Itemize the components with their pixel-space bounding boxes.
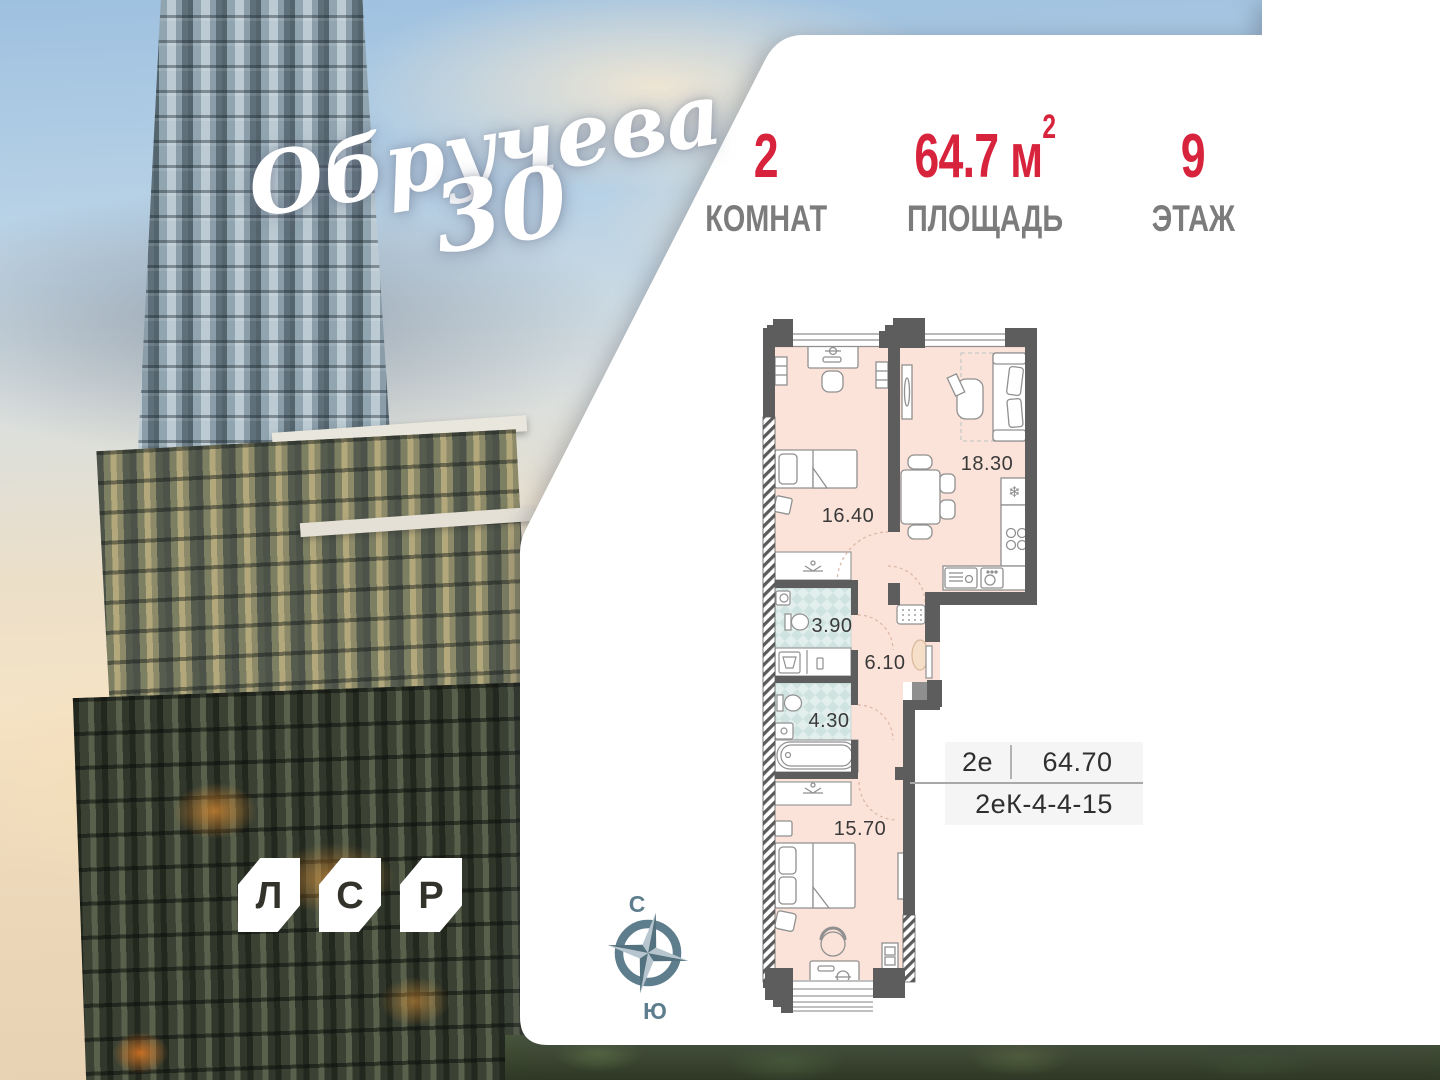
room-label-bedroom1: 16.40 [822,505,875,527]
sofa-cushion [1006,366,1023,395]
pillow [779,454,797,484]
pillow [779,877,796,904]
floor-label: ЭТАЖ [1151,200,1234,237]
logo-letter: С [336,877,363,915]
wardrobe [775,552,851,580]
washing-machine [779,652,800,673]
compass-north-label: С [629,891,646,917]
room-label-bathroom: 3.90 [812,615,853,637]
spec-row-bottom: 2еК-4-4-15 [945,784,1143,825]
sofa [993,353,1026,441]
chair [908,525,932,539]
room-label-bedroom2: 15.70 [834,818,887,840]
room-label-wc: 4.30 [809,710,850,732]
area-label: ПЛОЩАДЬ [907,200,1063,237]
entry-door-leaf [926,646,932,678]
fridge-icon: ❄ [1008,483,1021,501]
dining-table [901,470,940,524]
area-value: 64.7 м2 [915,126,1056,188]
chair [940,474,955,493]
developer-logo: Л С Р [238,858,462,932]
sliding-door-leaf [902,365,912,419]
shelf [775,357,787,385]
pillow [779,847,796,874]
logo-letter: Р [418,877,443,915]
spec-row-top: 2е 64.70 [945,742,1143,782]
chair [940,500,955,519]
rooms-label: КОМНАТ [705,200,827,237]
toilet [785,695,802,711]
rooms-count: 2 [754,126,778,188]
shelf [876,362,888,388]
apartment-card: Обручева 30 Л С Р 2 КОМНАТ 64.7 м2 ПЛОЩА… [0,0,1440,1080]
stat-area: 64.7 м2 ПЛОЩАДЬ [862,126,1108,237]
apartment-type: 2е [945,747,1010,778]
armchair [774,910,796,932]
washbasin [775,723,793,739]
compass-south-label: Ю [643,998,667,1024]
logo-cube: Р [400,858,462,932]
chest [775,821,792,836]
sofa-cushion [1007,398,1023,427]
hatched-wall [763,417,775,982]
logo-cube: С [319,858,381,932]
toilet [792,614,809,630]
room-label-living: 18.30 [961,453,1014,475]
floor-value: 9 [1181,126,1205,188]
nightstand [774,496,793,515]
floor-plan: ❄ 16.40 18.30 3.90 6.10 4.30 15.70 [755,305,1047,1020]
stat-rooms: 2 КОМНАТ [666,126,866,237]
apartment-code: 2еК-4-4-15 [975,789,1113,820]
bottle [817,658,823,669]
apartment-area: 64.70 [1012,747,1143,778]
bathtub [777,742,856,769]
compass-star [600,905,696,1001]
desk-chair [822,371,843,392]
stat-floor: 9 ЭТАЖ [1088,126,1298,237]
room-label-hallway: 6.10 [865,652,906,674]
toilet-tank [777,695,783,711]
chair [908,455,932,469]
compass: С Ю [598,878,702,1026]
logo-letter: Л [256,877,283,915]
toilet-tank [785,614,791,630]
logo-cube: Л [238,858,300,932]
